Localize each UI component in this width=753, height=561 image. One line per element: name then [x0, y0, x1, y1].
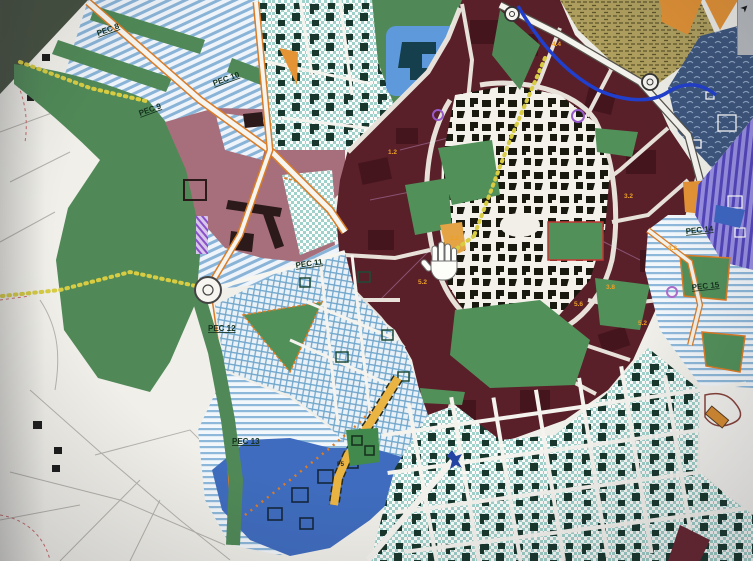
side-panel-edge[interactable]: ➤: [737, 0, 753, 55]
density-label: 4.4: [552, 41, 561, 48]
density-label: 5.6: [574, 301, 583, 308]
green-block-south: [346, 428, 380, 466]
density-label: 2.2: [450, 235, 459, 242]
violet-hatch-strip: [196, 216, 208, 254]
map-viewer-screen: PEC 8 PEC 9 PEC 10 PEC 11 PEC 12 PEC 13 …: [0, 0, 753, 561]
road-label-f5: F5: [337, 462, 345, 468]
density-label: 1.2: [388, 149, 397, 156]
density-label: 3.2: [668, 245, 677, 252]
density-label: 5.2: [418, 279, 427, 286]
core-plaza: [500, 213, 540, 237]
density-label: 3.8: [606, 284, 615, 291]
pec-label: PEC 13: [232, 437, 260, 446]
pec-label: PEC 12: [208, 324, 236, 333]
density-label: 3.2: [624, 193, 633, 200]
panel-arrow-icon[interactable]: ➤: [739, 2, 753, 16]
zoning-map-canvas[interactable]: PEC 8 PEC 9 PEC 10 PEC 11 PEC 12 PEC 13 …: [0, 0, 753, 561]
density-label: 5.2: [638, 320, 647, 327]
